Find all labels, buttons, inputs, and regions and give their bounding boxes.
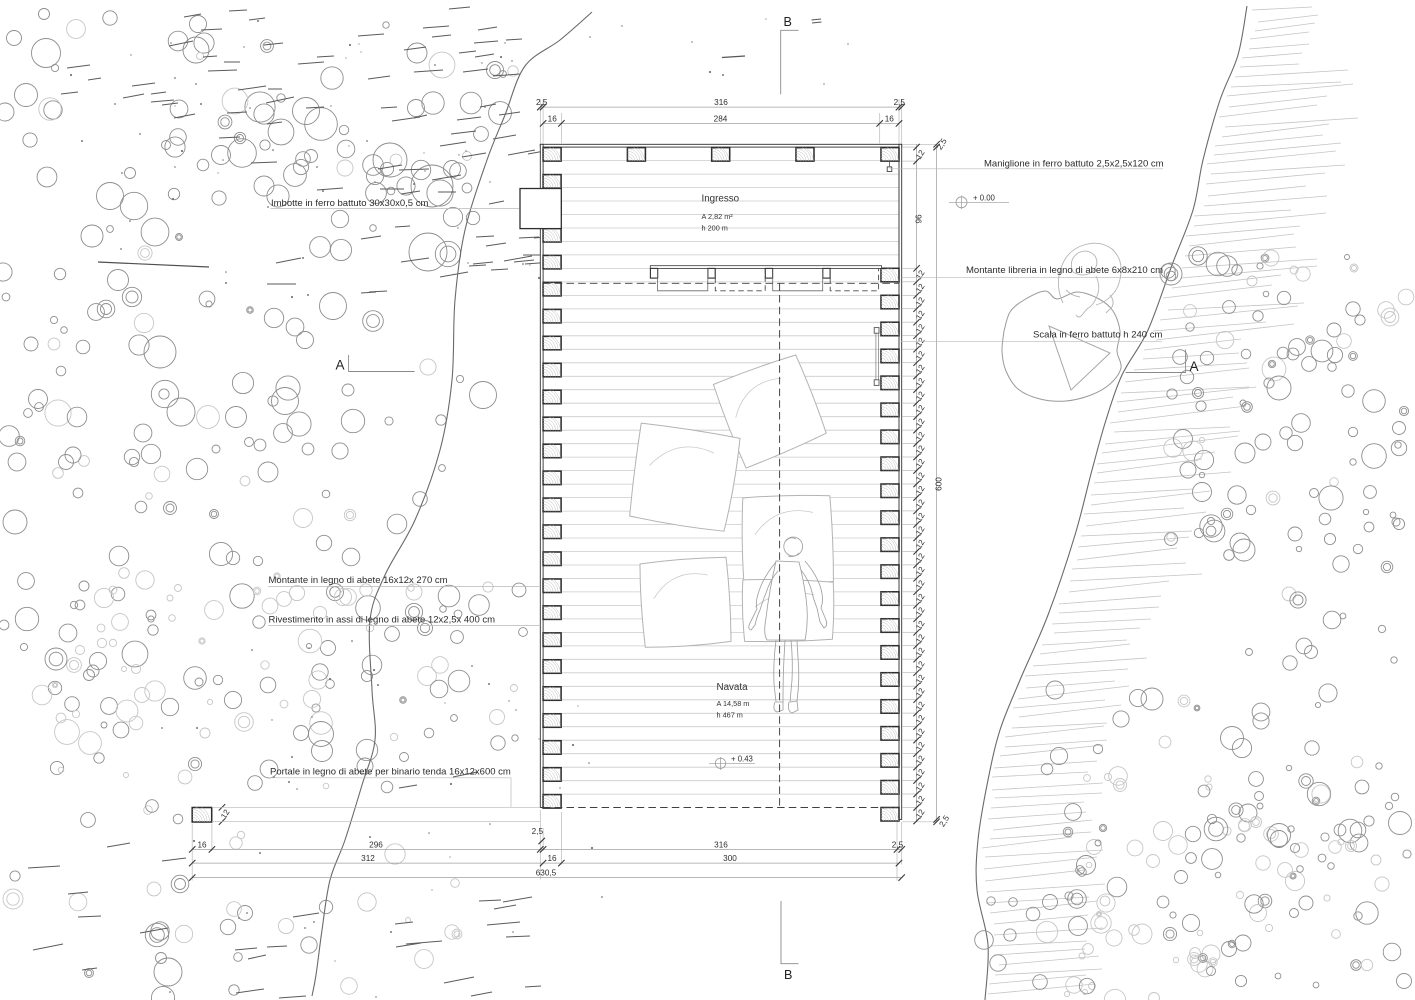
svg-text:316: 316 [714,98,728,107]
svg-text:12: 12 [914,376,927,389]
svg-text:284: 284 [714,114,728,123]
svg-text:Ingresso: Ingresso [702,194,740,205]
svg-text:16: 16 [548,114,558,123]
svg-text:12: 12 [914,659,927,672]
svg-text:12: 12 [914,780,927,793]
svg-text:A 14,58 m: A 14,58 m [717,699,750,708]
svg-text:16: 16 [547,854,557,863]
svg-text:12: 12 [914,754,927,767]
svg-text:12: 12 [914,632,927,645]
svg-text:12: 12 [914,148,927,161]
svg-text:16: 16 [885,114,895,123]
svg-text:12: 12 [914,295,927,308]
svg-text:12: 12 [914,686,927,699]
svg-text:12: 12 [914,309,927,322]
svg-text:12: 12 [914,470,927,483]
svg-text:12: 12 [914,700,927,713]
svg-text:Navata: Navata [717,682,749,693]
svg-text:296: 296 [369,840,383,849]
svg-text:12: 12 [914,807,927,820]
svg-text:12: 12 [914,578,927,591]
svg-text:12: 12 [914,524,927,537]
svg-text:+ 0.00: + 0.00 [973,194,996,203]
svg-text:96: 96 [914,214,923,224]
svg-text:12: 12 [914,538,927,551]
svg-text:Montante libreria in legno di: Montante libreria in legno di abete 6x8x… [966,265,1163,276]
svg-text:12: 12 [914,794,927,807]
svg-text:12: 12 [914,282,927,295]
svg-text:Rivestimento in assi di legno: Rivestimento in assi di legno di abete 1… [269,615,496,626]
svg-text:12: 12 [914,443,927,456]
svg-text:2,5: 2,5 [938,814,952,829]
svg-text:12: 12 [914,363,927,376]
svg-text:12: 12 [914,619,927,632]
svg-text:12: 12 [219,808,232,821]
svg-text:A: A [336,358,345,373]
svg-text:12: 12 [914,511,927,524]
svg-text:12: 12 [914,767,927,780]
svg-text:B: B [784,968,792,982]
svg-text:12: 12 [914,336,927,349]
svg-text:12: 12 [914,673,927,686]
svg-text:316: 316 [714,840,728,849]
svg-text:12: 12 [914,403,927,416]
svg-text:16: 16 [197,840,207,849]
svg-text:A 2,82 m²: A 2,82 m² [702,212,734,221]
svg-text:12: 12 [914,349,927,362]
svg-text:12: 12 [914,268,927,281]
svg-text:12: 12 [914,497,927,510]
svg-text:Imbotte in ferro battuto 30x30: Imbotte in ferro battuto 30x30x0,5 cm [271,198,428,209]
svg-text:2,5: 2,5 [935,137,949,152]
svg-text:12: 12 [914,592,927,605]
svg-text:630,5: 630,5 [536,869,557,878]
svg-text:B: B [784,15,792,29]
svg-text:12: 12 [914,565,927,578]
svg-text:h 467 m: h 467 m [717,711,743,720]
svg-text:2,5: 2,5 [894,98,906,107]
svg-text:12: 12 [914,322,927,335]
svg-text:12: 12 [914,551,927,564]
svg-text:300: 300 [723,854,737,863]
svg-text:12: 12 [914,484,927,497]
svg-text:2,5: 2,5 [536,98,548,107]
svg-text:12: 12 [914,740,927,753]
svg-text:A: A [1190,359,1199,374]
svg-text:312: 312 [361,854,375,863]
svg-text:+ 0.43: + 0.43 [731,755,753,764]
svg-text:12: 12 [914,417,927,430]
svg-text:12: 12 [914,727,927,740]
svg-text:12: 12 [914,605,927,618]
svg-text:12: 12 [914,390,927,403]
svg-text:Scala in ferro battuto h 240 c: Scala in ferro battuto h 240 cm [1033,330,1162,341]
svg-text:12: 12 [914,646,927,659]
svg-text:2,5: 2,5 [892,840,904,849]
svg-text:2,5: 2,5 [532,827,544,836]
svg-text:Portale in legno di abete per: Portale in legno di abete per binario te… [270,767,511,778]
svg-text:Montante in legno di abete 16x: Montante in legno di abete 16x12x 270 cm [269,575,448,586]
svg-text:12: 12 [914,713,927,726]
svg-text:12: 12 [914,430,927,443]
svg-text:h 200 m: h 200 m [702,224,728,233]
svg-text:600: 600 [934,477,943,491]
svg-text:Maniglione in ferro battuto 2,: Maniglione in ferro battuto 2,5x2,5x120 … [984,159,1164,170]
svg-text:12: 12 [914,457,927,470]
